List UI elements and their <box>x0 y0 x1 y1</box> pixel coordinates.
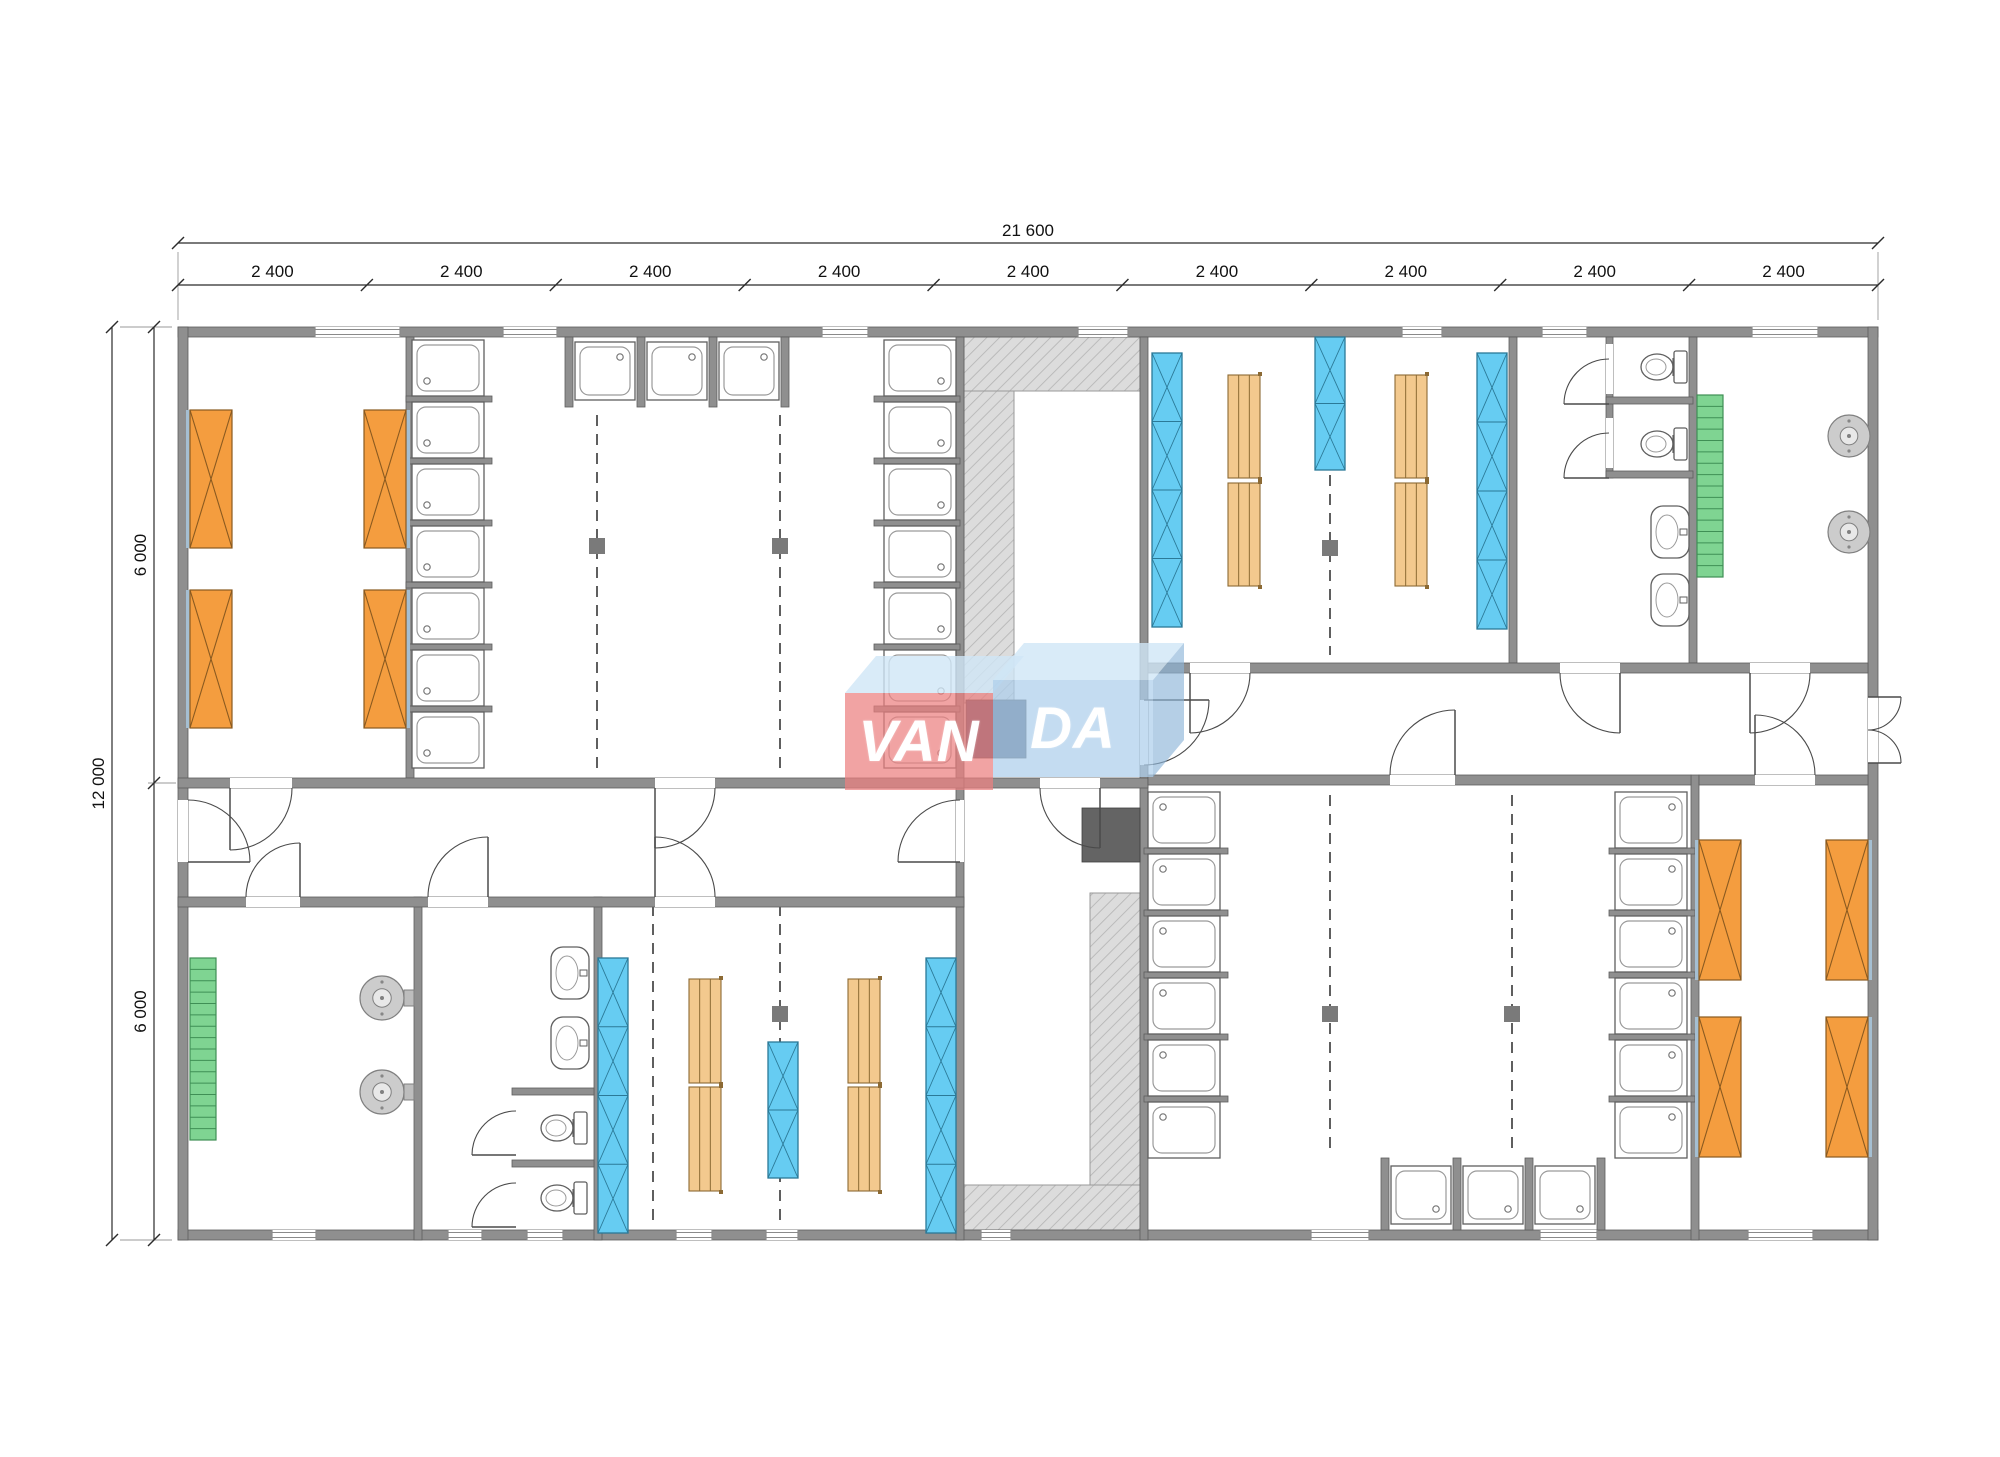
door-arc <box>1190 673 1250 733</box>
round-wash-fixture <box>1828 511 1870 553</box>
fixture-mount <box>404 1084 414 1100</box>
sauna-stove <box>1082 808 1140 862</box>
wall <box>1609 910 1695 916</box>
shower-tray <box>884 588 956 644</box>
wall <box>1689 337 1697 663</box>
structural-post <box>772 538 788 554</box>
door-opening <box>1606 418 1613 468</box>
wash-basin <box>551 947 589 999</box>
wash-basin <box>551 1017 589 1069</box>
shower-tray <box>1615 916 1687 972</box>
door-opening <box>1755 775 1815 785</box>
shower-tray <box>1615 978 1687 1034</box>
door-opening <box>1606 344 1613 394</box>
wall <box>1144 1096 1228 1102</box>
wall <box>1597 1158 1605 1230</box>
module-axes <box>597 415 1512 1225</box>
tap-icon <box>580 970 587 976</box>
wall <box>414 897 422 1240</box>
door-arc <box>655 837 715 897</box>
wall <box>178 778 964 788</box>
wall <box>874 520 960 526</box>
tap-icon <box>580 1040 587 1046</box>
door-arc <box>1390 710 1455 775</box>
shower-tray <box>884 712 956 768</box>
shower-tray <box>412 464 484 520</box>
toilet <box>1641 351 1687 383</box>
shower-tray <box>1615 1102 1687 1158</box>
bunk-bed <box>1826 1017 1872 1157</box>
locker-unit <box>1152 353 1182 627</box>
wall <box>1140 337 1148 1240</box>
wash-basin <box>1651 574 1689 626</box>
shower-tray <box>412 402 484 458</box>
window <box>1311 1230 1369 1240</box>
window <box>1540 1230 1597 1240</box>
door-swing <box>1190 673 1250 733</box>
wall <box>1609 848 1695 854</box>
locker-unit <box>1477 353 1507 629</box>
bed-wall-strip <box>406 590 410 728</box>
door-swing <box>655 788 715 848</box>
window <box>315 327 400 337</box>
locker-unit <box>768 1042 798 1178</box>
shower-tray <box>412 526 484 582</box>
door-arc <box>1750 673 1810 733</box>
door-swing <box>472 1111 516 1155</box>
bed-wall-strip <box>406 410 410 548</box>
door-swing <box>1564 359 1609 404</box>
fixture-mount <box>404 990 414 1006</box>
dimension-label: 6 000 <box>131 534 150 577</box>
window <box>527 1230 563 1240</box>
wall <box>406 458 492 464</box>
window <box>1542 327 1587 337</box>
window <box>503 327 557 337</box>
dimension-label: 12 000 <box>89 758 108 810</box>
bench <box>689 1084 723 1194</box>
window <box>1748 1230 1813 1240</box>
shower-tray <box>884 650 956 706</box>
shower-tray <box>412 712 484 768</box>
shower-tray <box>884 402 956 458</box>
dimension-label: 2 400 <box>1007 262 1050 281</box>
toilet <box>541 1112 587 1144</box>
door-opening <box>178 800 188 862</box>
door-swing <box>1564 433 1609 478</box>
door-opening <box>1040 778 1100 788</box>
wall <box>565 337 573 407</box>
wall <box>406 396 492 402</box>
wall <box>1609 972 1695 978</box>
shower-tray <box>1615 792 1687 848</box>
wall <box>1606 471 1693 478</box>
dimension-label: 2 400 <box>1196 262 1239 281</box>
bench <box>1228 480 1262 589</box>
structural-post <box>1322 1006 1338 1022</box>
bench <box>689 976 723 1086</box>
shower-tray <box>884 526 956 582</box>
door-swing <box>246 843 300 897</box>
locker-unit <box>598 958 628 1233</box>
bench <box>848 1084 882 1194</box>
door-arc <box>472 1183 516 1227</box>
wall <box>512 1088 594 1095</box>
bed-wall-strip <box>186 590 190 728</box>
sauna-stove <box>966 700 1026 758</box>
wall <box>406 644 492 650</box>
shower-tray <box>884 340 956 396</box>
bench <box>1228 372 1262 481</box>
shower-tray <box>1148 1102 1220 1158</box>
window <box>822 327 868 337</box>
door-swing <box>1755 715 1815 775</box>
sauna-bench-platform <box>964 1185 1140 1230</box>
shower-tray <box>1391 1166 1451 1224</box>
door-swing <box>472 1183 516 1227</box>
wall <box>1509 337 1517 663</box>
dimension-label: 2 400 <box>1762 262 1805 281</box>
wall <box>874 644 960 650</box>
door-opening <box>1560 663 1620 673</box>
door-swing <box>1390 710 1455 775</box>
wash-basin <box>1651 506 1689 558</box>
shower-tray <box>1615 1040 1687 1096</box>
bunk-bed <box>186 410 232 548</box>
sauna-bench-platform <box>1090 893 1140 1185</box>
toilet <box>1641 428 1687 460</box>
wall <box>709 337 717 407</box>
shower-tray <box>1615 854 1687 910</box>
radiator-rack <box>190 958 216 1140</box>
bench <box>1395 372 1429 481</box>
wall <box>1381 1158 1389 1230</box>
bunk-bed <box>364 410 410 548</box>
door-opening <box>246 897 300 907</box>
shower-tray <box>1148 792 1220 848</box>
door-opening <box>655 778 715 788</box>
door-swing <box>1560 673 1620 733</box>
door-swing <box>428 837 488 897</box>
bench <box>1395 480 1429 589</box>
dimension-label: 2 400 <box>251 262 294 281</box>
wall <box>178 1230 1878 1240</box>
door-arc <box>428 837 488 897</box>
round-wash-fixture <box>360 1070 404 1114</box>
door-opening <box>428 897 488 907</box>
wall <box>1606 397 1693 404</box>
bunk-bed <box>1826 840 1872 980</box>
structural-post <box>1322 540 1338 556</box>
door-arc <box>246 843 300 897</box>
window <box>1078 327 1128 337</box>
wall <box>1144 910 1228 916</box>
shower-tray <box>575 342 635 400</box>
shower-tray <box>1535 1166 1595 1224</box>
bench <box>848 976 882 1086</box>
wall <box>874 396 960 402</box>
tap-icon <box>1680 529 1687 535</box>
shower-tray <box>412 650 484 706</box>
door-opening <box>512 1179 519 1223</box>
door-swing <box>655 837 715 897</box>
radiator-rack <box>1697 395 1723 577</box>
shower-tray <box>1463 1166 1523 1224</box>
door-swing <box>1750 673 1810 733</box>
door-swing <box>188 800 250 862</box>
door-swing <box>230 788 292 850</box>
door-arc <box>230 788 292 850</box>
sauna-bench-platform <box>964 391 1014 703</box>
window <box>676 1230 712 1240</box>
shower-tray <box>412 340 484 396</box>
wall <box>1609 1096 1695 1102</box>
floor-plan-drawing: 21 6002 4002 4002 4002 4002 4002 4002 40… <box>0 0 2000 1457</box>
wall <box>1144 1034 1228 1040</box>
wall <box>874 458 960 464</box>
door-opening <box>1390 775 1455 785</box>
window <box>1752 327 1818 337</box>
shower-tray <box>1148 854 1220 910</box>
door-opening <box>655 897 715 907</box>
shower-tray <box>1148 978 1220 1034</box>
wall <box>1525 1158 1533 1230</box>
door-swing <box>898 800 960 862</box>
door-arc <box>1560 673 1620 733</box>
wall <box>406 706 492 712</box>
dimension-label: 2 400 <box>818 262 861 281</box>
shower-tray <box>1148 1040 1220 1096</box>
door-opening <box>1190 663 1250 673</box>
dimension-label: 2 400 <box>1385 262 1428 281</box>
locker-unit <box>926 958 956 1233</box>
structural-post <box>1504 1006 1520 1022</box>
structural-post <box>772 1006 788 1022</box>
door-opening <box>1750 663 1810 673</box>
shower-tray <box>884 464 956 520</box>
bunk-bed <box>364 590 410 728</box>
bunk-bed <box>186 590 232 728</box>
window <box>981 1230 1011 1240</box>
dimension-label: 6 000 <box>131 990 150 1033</box>
shower-tray <box>647 342 707 400</box>
door-arc <box>1755 715 1815 775</box>
door-arc <box>655 788 715 848</box>
floor-plan-sheet: 21 6002 4002 4002 4002 4002 4002 4002 40… <box>0 0 2000 1457</box>
door-opening <box>1140 700 1148 765</box>
door-arc <box>472 1111 516 1155</box>
dimension-label: 2 400 <box>629 262 672 281</box>
shower-tray <box>719 342 779 400</box>
wall <box>637 337 645 407</box>
tap-icon <box>1680 597 1687 603</box>
wall <box>874 582 960 588</box>
wall <box>1144 972 1228 978</box>
window <box>448 1230 482 1240</box>
door-opening <box>512 1107 519 1155</box>
wall <box>781 337 789 407</box>
wall <box>1609 1034 1695 1040</box>
structural-post <box>589 538 605 554</box>
dimension-label: 2 400 <box>440 262 483 281</box>
door-arc <box>1564 359 1609 404</box>
door-arc <box>1564 433 1609 478</box>
round-wash-fixture <box>360 976 404 1020</box>
wall <box>1453 1158 1461 1230</box>
bed-wall-strip <box>186 410 190 548</box>
sauna-bench-platform <box>964 337 1140 391</box>
door-arc <box>898 800 960 862</box>
shower-tray <box>412 588 484 644</box>
wall <box>406 520 492 526</box>
locker-unit <box>1315 337 1345 470</box>
toilet <box>541 1182 587 1214</box>
wall <box>406 582 492 588</box>
wall <box>178 327 1878 337</box>
window <box>1402 327 1442 337</box>
wall <box>874 706 960 712</box>
shower-tray <box>1148 916 1220 972</box>
window <box>766 1230 798 1240</box>
door-opening <box>230 778 292 788</box>
window <box>272 1230 316 1240</box>
dimension-label: 21 600 <box>1002 221 1054 240</box>
dimension-label: 2 400 <box>1573 262 1616 281</box>
wall <box>1144 848 1228 854</box>
wall <box>512 1160 594 1167</box>
round-wash-fixture <box>1828 415 1870 457</box>
door-arc <box>188 800 250 862</box>
bunk-bed <box>1695 840 1741 980</box>
door-opening <box>956 800 964 862</box>
bunk-bed <box>1695 1017 1741 1157</box>
